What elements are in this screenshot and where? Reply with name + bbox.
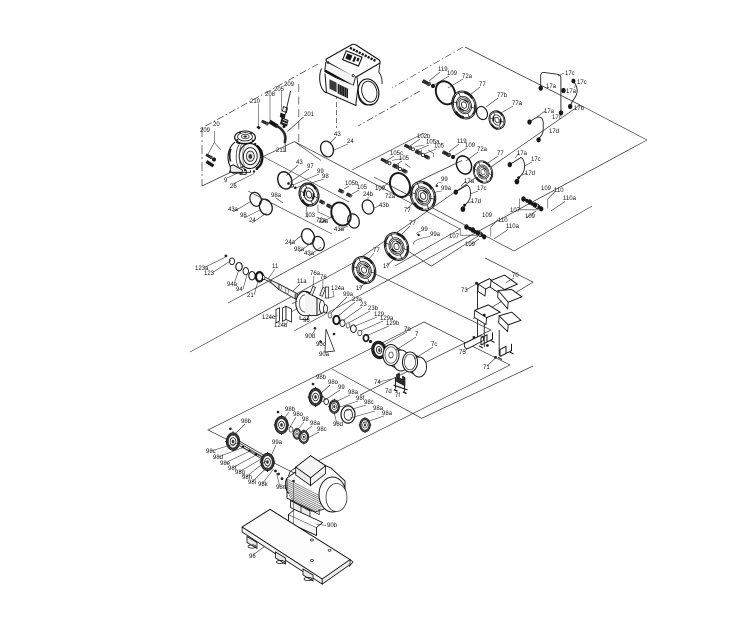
svg-text:17c: 17c — [477, 186, 487, 192]
svg-text:109: 109 — [482, 213, 493, 219]
svg-text:105: 105 — [434, 144, 445, 150]
svg-text:7f: 7f — [395, 393, 400, 399]
svg-text:210: 210 — [250, 99, 261, 105]
svg-text:24: 24 — [347, 139, 354, 145]
svg-text:43: 43 — [296, 160, 303, 166]
svg-text:17: 17 — [383, 264, 390, 270]
svg-text:110a: 110a — [506, 224, 520, 230]
svg-text:17: 17 — [356, 286, 363, 292]
svg-text:77a: 77a — [512, 101, 523, 107]
svg-text:73: 73 — [461, 288, 468, 294]
svg-text:209: 209 — [200, 128, 211, 134]
svg-text:26: 26 — [230, 184, 237, 190]
svg-text:109: 109 — [541, 186, 552, 192]
svg-text:72a: 72a — [462, 74, 473, 80]
svg-text:90c: 90c — [316, 342, 326, 348]
svg-text:98b: 98b — [316, 375, 327, 381]
svg-text:105: 105 — [399, 156, 410, 162]
svg-text:72a: 72a — [385, 194, 396, 200]
svg-text:98: 98 — [240, 213, 247, 219]
svg-text:124c: 124c — [262, 315, 275, 321]
svg-text:107: 107 — [449, 234, 460, 240]
svg-text:77b: 77b — [497, 93, 508, 99]
svg-text:71: 71 — [483, 365, 490, 371]
svg-text:11: 11 — [272, 264, 279, 270]
svg-text:17c: 17c — [531, 157, 541, 163]
svg-text:17a: 17a — [566, 89, 577, 95]
svg-text:103: 103 — [305, 213, 316, 219]
svg-text:11a: 11a — [297, 279, 307, 285]
svg-text:99: 99 — [338, 385, 345, 391]
svg-text:98i: 98i — [248, 480, 256, 486]
svg-text:17a: 17a — [464, 179, 475, 185]
svg-text:99a: 99a — [441, 186, 452, 192]
svg-text:43b: 43b — [379, 203, 390, 209]
svg-text:24b: 24b — [363, 192, 374, 198]
svg-text:107: 107 — [510, 208, 521, 214]
svg-text:76: 76 — [320, 275, 327, 281]
svg-text:99a: 99a — [430, 232, 441, 238]
svg-text:99: 99 — [421, 227, 428, 233]
svg-text:43a: 43a — [304, 251, 315, 257]
svg-text:211: 211 — [276, 148, 286, 154]
svg-text:24a: 24a — [285, 240, 296, 246]
svg-text:7b: 7b — [404, 327, 411, 333]
svg-text:209: 209 — [284, 82, 295, 88]
svg-text:90a: 90a — [319, 352, 330, 358]
svg-text:70: 70 — [512, 273, 519, 279]
svg-text:110: 110 — [554, 188, 564, 194]
svg-text:74: 74 — [374, 380, 381, 386]
svg-text:7c: 7c — [431, 342, 437, 348]
svg-text:123: 123 — [204, 271, 215, 277]
svg-text:17c: 17c — [577, 80, 587, 86]
svg-text:17a: 17a — [546, 84, 557, 90]
svg-text:17c: 17c — [552, 115, 562, 121]
svg-text:96: 96 — [249, 554, 256, 560]
svg-text:98b: 98b — [241, 419, 252, 425]
svg-text:77: 77 — [497, 151, 504, 157]
svg-text:7d: 7d — [385, 389, 392, 395]
svg-text:99a: 99a — [272, 440, 283, 446]
svg-text:96: 96 — [303, 318, 310, 324]
svg-text:110a: 110a — [563, 196, 577, 202]
svg-text:77: 77 — [479, 82, 486, 88]
svg-text:43: 43 — [334, 132, 341, 138]
svg-text:20: 20 — [213, 122, 220, 128]
svg-text:98k: 98k — [258, 482, 269, 488]
svg-text:17b: 17b — [574, 106, 585, 112]
svg-text:17a: 17a — [517, 151, 528, 157]
svg-text:94: 94 — [236, 287, 243, 293]
svg-text:98: 98 — [302, 417, 309, 423]
svg-text:109: 109 — [375, 186, 386, 192]
svg-text:21: 21 — [247, 293, 254, 299]
svg-text:208: 208 — [265, 92, 276, 98]
svg-text:90d: 90d — [305, 334, 315, 340]
svg-text:77: 77 — [404, 208, 411, 214]
svg-text:97: 97 — [307, 164, 314, 170]
svg-text:90b: 90b — [327, 523, 338, 529]
svg-text:98d: 98d — [333, 422, 343, 428]
svg-text:17d: 17d — [471, 199, 481, 205]
svg-text:72a: 72a — [477, 147, 488, 153]
svg-text:17d: 17d — [525, 171, 535, 177]
svg-text:17d: 17d — [549, 129, 559, 135]
svg-text:23: 23 — [360, 302, 367, 308]
svg-text:77: 77 — [409, 221, 416, 227]
svg-text:72a: 72a — [318, 219, 329, 225]
svg-text:17c: 17c — [565, 71, 575, 77]
svg-text:201: 201 — [304, 112, 315, 118]
svg-text:205: 205 — [274, 87, 285, 93]
svg-text:99: 99 — [441, 177, 448, 183]
